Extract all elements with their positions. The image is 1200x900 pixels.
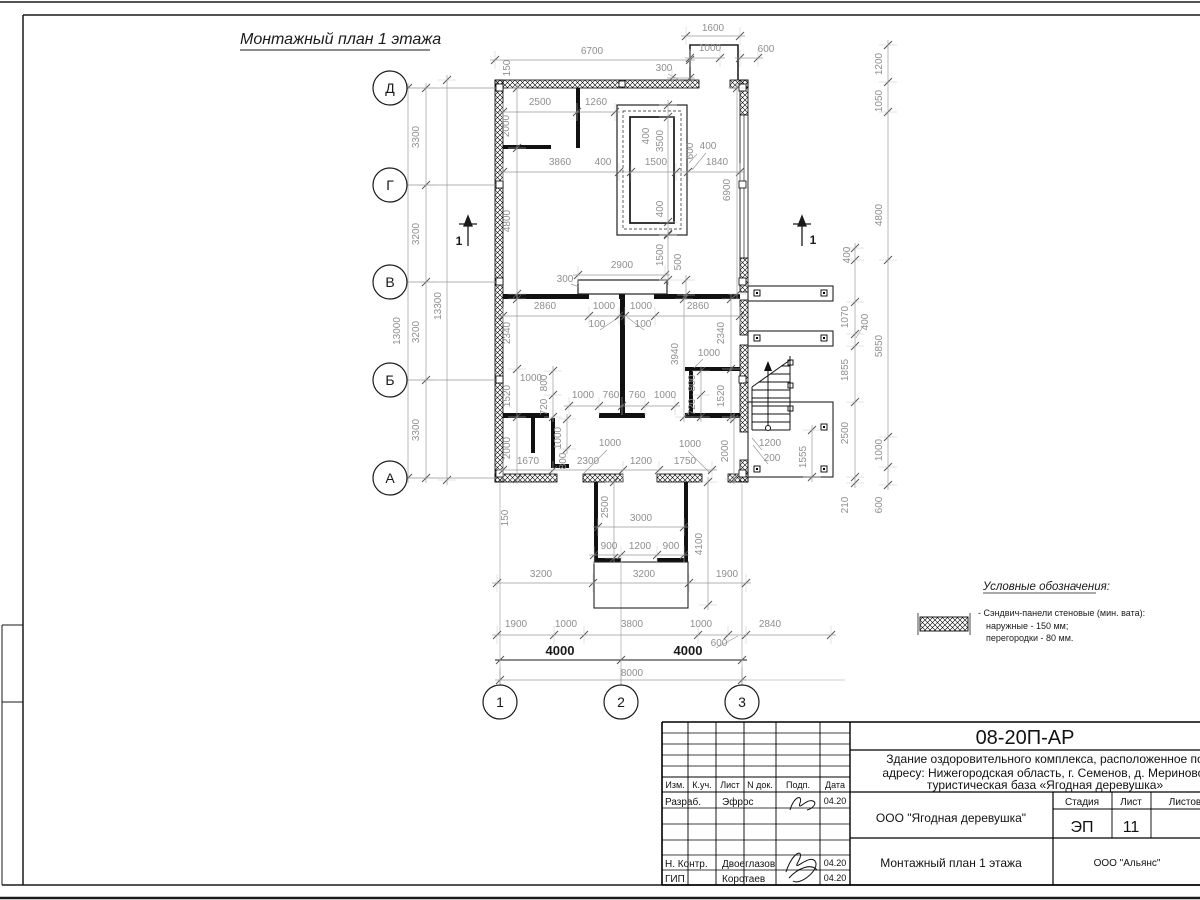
- dim-label: 1000: [555, 619, 578, 630]
- name-razrab: Эфрос: [722, 796, 754, 808]
- dim-label: 6700: [581, 46, 604, 57]
- col-ndok: N док.: [747, 780, 773, 790]
- dim-label: 3000: [630, 513, 653, 524]
- dim-label: 1555: [798, 445, 809, 468]
- dim-label: 600: [874, 496, 885, 513]
- legend-line3: перегородки - 80 мм.: [986, 633, 1073, 643]
- page-title: Монтажный план 1 этажа: [240, 31, 441, 50]
- dim-label: 760: [629, 390, 646, 401]
- dim-label: 1200: [629, 541, 652, 552]
- dim-label: 400: [700, 141, 717, 152]
- dim-label: 400: [655, 200, 666, 217]
- dim-label: 2000: [502, 436, 513, 459]
- dim-label: 3300: [411, 418, 422, 441]
- dim-label: 3800: [621, 619, 644, 630]
- dim-label: 100: [589, 319, 606, 330]
- dim-label: 2000: [720, 439, 731, 462]
- title-block: 08-20П-АР Здание оздоровительного компле…: [662, 722, 1200, 885]
- dim-label: 1000: [679, 439, 702, 450]
- dim-label: 3200: [633, 569, 656, 580]
- dim-label: 1: [456, 234, 463, 248]
- dim-label: 150: [502, 59, 513, 76]
- dim-label: 400: [641, 127, 652, 144]
- dim-label: 1: [810, 233, 817, 247]
- legend: Условные обозначения: - Сэндвич-панели с…: [918, 581, 1145, 643]
- legend-title: Условные обозначения:: [982, 581, 1110, 593]
- dim-label: 2860: [534, 301, 557, 312]
- dim-label: 720: [687, 398, 698, 415]
- stage-label: Стадия: [1065, 797, 1099, 808]
- stage-value: ЭП: [1071, 819, 1094, 836]
- dim-label: 800: [687, 374, 698, 391]
- dim-label: 1000: [630, 301, 653, 312]
- dim-label: 4100: [694, 532, 705, 555]
- dim-label: 1050: [874, 89, 885, 112]
- stair-direction-arrow: [764, 361, 772, 371]
- dim-label: 600: [685, 142, 696, 159]
- staircase: [752, 356, 790, 431]
- dim-label: 2300: [577, 456, 600, 467]
- axis-label: Г: [386, 177, 394, 193]
- dim-label: 1200: [874, 52, 885, 75]
- dim-label: 3200: [411, 222, 422, 245]
- dim-label: 1200: [630, 456, 653, 467]
- dim-label: 1000: [690, 619, 713, 630]
- plan-title: Монтажный план 1 этажа: [240, 31, 441, 48]
- org-name: ООО "Ягодная деревушка": [876, 811, 1026, 825]
- dim-label: 1855: [840, 358, 851, 381]
- axis-label: 3: [738, 694, 746, 710]
- dim-label: 760: [603, 390, 620, 401]
- axis-label: Д: [385, 80, 395, 96]
- axis-label: Б: [385, 372, 394, 388]
- pool-inner: [630, 117, 674, 223]
- dim-label: 100: [635, 319, 652, 330]
- date-1: 04.20: [824, 796, 847, 806]
- ramp-upper: [748, 286, 833, 301]
- sheet-label: Лист: [1120, 797, 1142, 808]
- col-list: Лист: [720, 780, 740, 790]
- dim-label: 5850: [874, 334, 885, 357]
- dim-label: 800: [539, 374, 550, 391]
- dim-label: 4800: [874, 203, 885, 226]
- sheet-number: 11: [1123, 819, 1140, 836]
- dim-label: 3860: [549, 157, 572, 168]
- dim-label: 1500: [645, 157, 668, 168]
- bench: [578, 280, 667, 294]
- dim-label: 2000: [501, 114, 512, 137]
- project-desc-3: туристическая база «Ягодная деревушка»: [927, 778, 1164, 792]
- legend-item: - Сэндвич-панели стеновые (мин. вата):: [978, 608, 1145, 618]
- dim-label: 300: [557, 274, 574, 285]
- dim-label: 1750: [674, 456, 697, 467]
- dim-label: 1000: [599, 438, 622, 449]
- dim-label: 4000: [546, 643, 575, 658]
- col-podp: Подп.: [786, 780, 810, 790]
- signature: [786, 853, 817, 882]
- dim-label: 1260: [585, 97, 608, 108]
- dim-label: 1900: [505, 619, 528, 630]
- project-desc-1: Здание оздоровительного комплекса, распо…: [886, 752, 1200, 766]
- dim-label: 1600: [702, 23, 725, 34]
- dimensions-layer: 1600670010006003001502500126020006003860…: [373, 23, 897, 719]
- dim-label: 1520: [716, 384, 727, 407]
- dim-label: 1000: [572, 390, 595, 401]
- dim-label: 1000: [553, 426, 564, 449]
- dim-label: 3500: [655, 129, 666, 152]
- pool-outer: [617, 105, 687, 235]
- pool-middle: [623, 111, 681, 229]
- dim-label: 1000: [698, 348, 721, 359]
- dim-label: 2500: [529, 97, 552, 108]
- drawing-name: Монтажный план 1 этажа: [880, 856, 1022, 870]
- name-nkontr: Двоеглазов: [722, 859, 775, 870]
- dim-label: 300: [656, 63, 673, 74]
- axis-label: В: [385, 274, 394, 290]
- dim-label: 400: [595, 157, 612, 168]
- dim-label: 6900: [722, 178, 733, 201]
- dim-label: 900: [663, 541, 680, 552]
- outlines: [578, 45, 833, 608]
- partitions: [503, 88, 740, 562]
- dim-label: 2900: [611, 260, 634, 271]
- date-2: 04.20: [824, 858, 847, 868]
- drawing-sheet: Монтажный план 1 этажа: [0, 0, 1200, 900]
- dim-label: 1520: [502, 384, 513, 407]
- col-izm: Изм.: [665, 780, 684, 790]
- dim-label: 13300: [433, 292, 444, 320]
- dim-label: 500: [673, 253, 684, 270]
- dim-label: 2340: [502, 321, 513, 344]
- axis-label: А: [385, 470, 395, 486]
- ramp-lower: [748, 331, 833, 346]
- dim-label: 1670: [517, 456, 540, 467]
- name-gip: Коротаев: [722, 874, 765, 885]
- row-razrab: Разраб.: [665, 796, 701, 808]
- legend-line2: наружные - 150 мм;: [986, 621, 1068, 631]
- dim-label: 4000: [674, 643, 703, 658]
- dim-label: 2840: [759, 619, 782, 630]
- dim-label: 400: [860, 313, 871, 330]
- dim-label: 720: [539, 398, 550, 415]
- col-data: Дата: [825, 780, 845, 790]
- dim-label: 1900: [716, 569, 739, 580]
- dim-label: 2340: [716, 321, 727, 344]
- sheets-label: Листов: [1169, 797, 1200, 808]
- dim-label: 3200: [530, 569, 553, 580]
- dim-label: 4800: [502, 209, 513, 232]
- date-3: 04.20: [824, 873, 847, 883]
- axis-label: 1: [496, 694, 504, 710]
- firm-name: ООО "Альянс": [1094, 858, 1161, 869]
- dim-label: 600: [711, 638, 728, 649]
- section-arrow-right: [798, 216, 806, 226]
- dim-label: 1000: [593, 301, 616, 312]
- col-kuch: К.уч.: [692, 780, 711, 790]
- dim-label: 1000: [654, 390, 677, 401]
- axis-label: 2: [617, 694, 625, 710]
- dim-label: 210: [840, 496, 851, 513]
- dim-label: 900: [601, 541, 618, 552]
- doc-code: 08-20П-АР: [976, 727, 1075, 749]
- section-arrow-left: [464, 216, 472, 226]
- dim-label: 2860: [687, 301, 710, 312]
- dim-label: 800: [558, 452, 569, 469]
- dim-label: 8000: [621, 668, 644, 679]
- dim-label: 600: [758, 44, 775, 55]
- dim-label: 150: [500, 509, 511, 526]
- dim-label: 1000: [699, 43, 722, 54]
- dim-label: 3200: [411, 320, 422, 343]
- row-gip: ГИП: [665, 874, 685, 885]
- dim-label: 2500: [840, 421, 851, 444]
- row-nkontr: Н. Контр.: [665, 859, 708, 870]
- dim-label: 1070: [840, 305, 851, 328]
- dim-label: 2500: [600, 495, 611, 518]
- dim-label: 3300: [411, 125, 422, 148]
- dim-label: 3940: [670, 342, 681, 365]
- dim-label: 400: [842, 246, 853, 263]
- dim-label: 13000: [392, 317, 403, 345]
- dim-label: 200: [764, 453, 781, 464]
- legend-swatch: [918, 613, 970, 635]
- dim-label: 1000: [874, 438, 885, 461]
- dim-label: 1500: [655, 243, 666, 266]
- dim-label: 1200: [759, 438, 782, 449]
- dim-label: 1840: [706, 157, 729, 168]
